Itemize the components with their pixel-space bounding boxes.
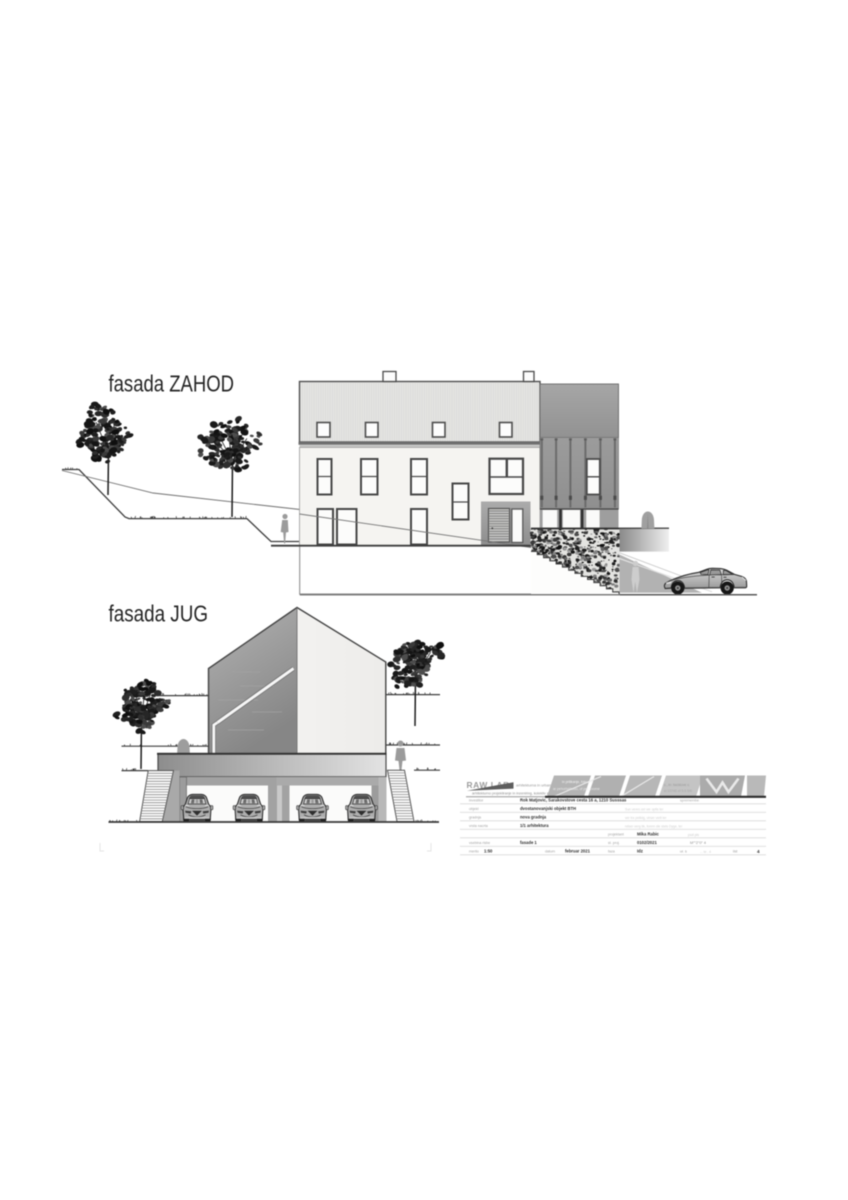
svg-text:relser verg tik, forem die: relser verg tik, forem die stels Dyge, t…	[625, 825, 683, 829]
svg-text:list: list	[733, 850, 737, 854]
svg-text:Rok Matjovic, Sarakovstove ces: Rok Matjovic, Sarakovstove cesta 16 a, 1…	[520, 798, 627, 803]
svg-text:4: 4	[757, 849, 760, 854]
svg-text:fasada ZAHOD: fasada ZAHOD	[109, 371, 235, 397]
svg-text:si 10746 of 5.6 5/6: si 10746 of 5.6 5/6	[664, 789, 692, 793]
svg-text:1/1 arhitektura: 1/1 arhitektura	[520, 823, 549, 828]
svg-text:0102/2021: 0102/2021	[637, 840, 657, 845]
svg-text:spremembe: spremembe	[680, 799, 699, 803]
svg-text:vrsta nacrta: vrsta nacrta	[469, 824, 488, 828]
svg-text:st. proj.: st. proj.	[608, 841, 620, 845]
svg-text:ver tra pellidg, virser ve: ver tra pellidg, virser verli ter	[625, 816, 667, 820]
svg-text:projektant: projektant	[608, 833, 624, 837]
svg-text:... te . 4: ... te . 4	[700, 850, 711, 854]
svg-text:pod pis: pod pis	[688, 833, 699, 837]
svg-text:ur. s: ur. s	[680, 850, 687, 854]
svg-text:nova gradnja: nova gradnja	[520, 815, 547, 820]
svg-text:datum: datum	[545, 850, 555, 854]
svg-text:objekt: objekt	[469, 807, 479, 811]
svg-text:fasade 1: fasade 1	[520, 840, 537, 845]
svg-text:1:50: 1:50	[484, 849, 493, 854]
svg-text:fasada JUG: fasada JUG	[109, 601, 209, 627]
svg-text:Sun veres cet ver opfis te: Sun veres cet ver opfis ter	[625, 808, 664, 812]
svg-text:ar pehorbaihudu, of pel, svome: ar pehorbaihudu, of pel, svome	[553, 787, 600, 791]
svg-text:dvostanovanjski objekt BTH: dvostanovanjski objekt BTH	[520, 806, 576, 811]
svg-text:februar 2021: februar 2021	[565, 849, 591, 854]
svg-text:c., kr. facistove c.: c., kr. facistove c.	[664, 783, 690, 787]
svg-text:M""2"0" 4: M""2"0" 4	[690, 841, 706, 845]
svg-text:gradnja: gradnja	[469, 816, 481, 820]
svg-text:investitor: investitor	[469, 799, 484, 803]
svg-text:faza: faza	[608, 850, 615, 854]
svg-text:in pritikanje, foto dok: in pritikanje, foto dok	[562, 780, 593, 784]
svg-text:Idz: Idz	[637, 849, 643, 854]
svg-text:Mika Rabic: Mika Rabic	[637, 832, 660, 837]
svg-text:vsebina risbe: vsebina risbe	[469, 841, 490, 845]
svg-text:merilo: merilo	[469, 850, 479, 854]
